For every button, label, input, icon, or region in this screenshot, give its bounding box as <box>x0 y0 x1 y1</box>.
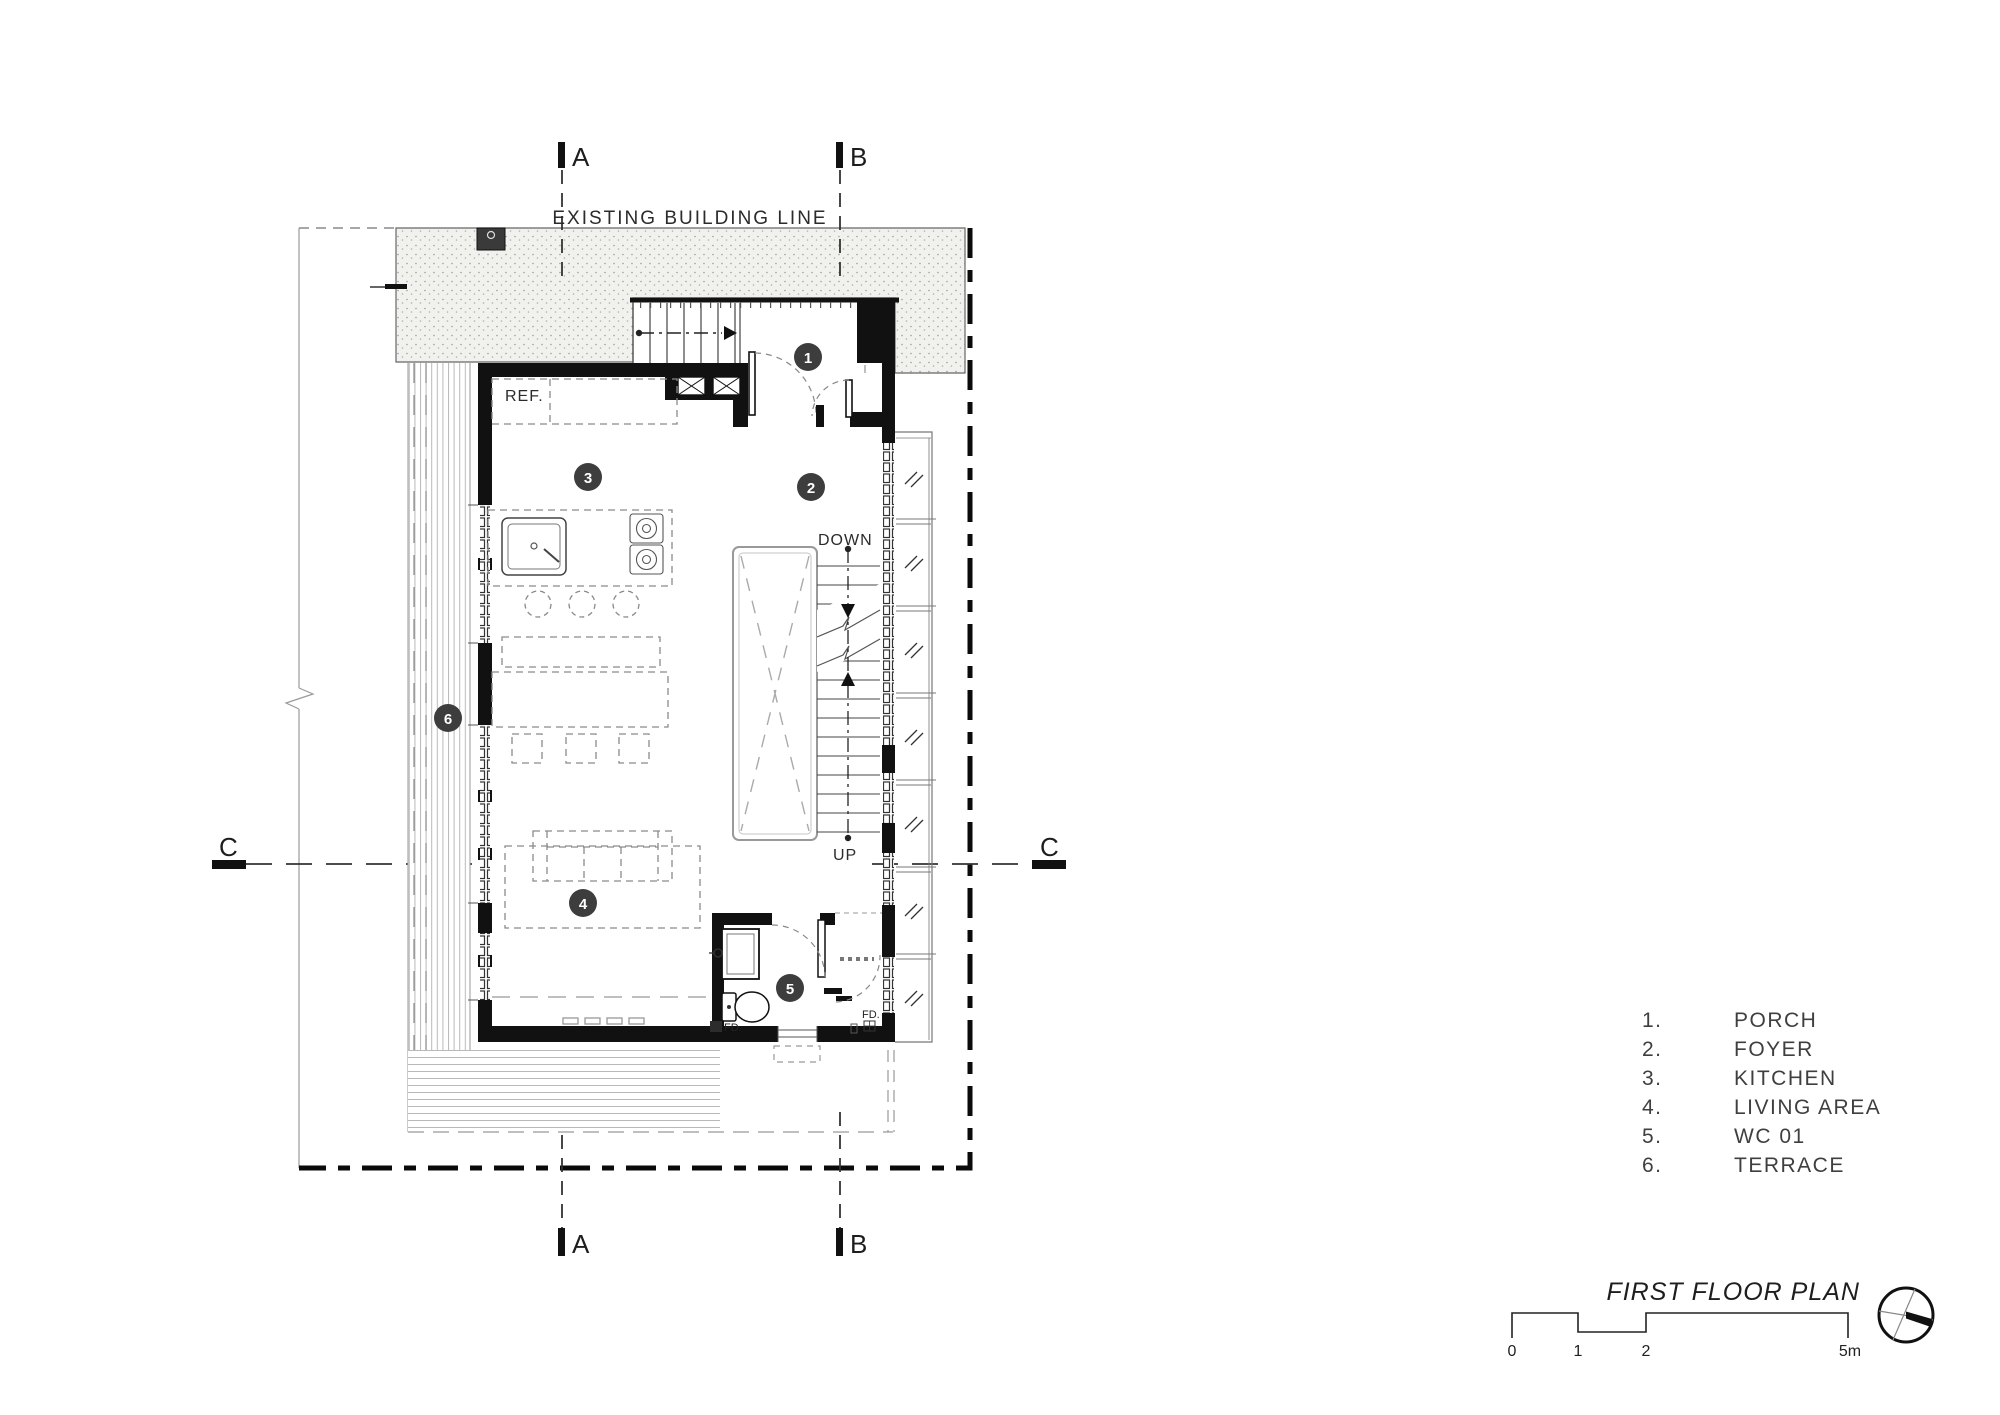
stair-guideline-dot-bottom <box>845 835 851 841</box>
scale-tick-5m: 5m <box>1839 1343 1861 1360</box>
svg-text:1: 1 <box>804 350 812 367</box>
window-right-1 <box>883 443 894 745</box>
legend-num: 3. <box>1642 1064 1734 1093</box>
wall-porch-corner <box>857 298 895 363</box>
entry-door-stop <box>816 405 824 427</box>
svg-text:6: 6 <box>444 711 452 728</box>
legend-label: TERRACE <box>1734 1151 1845 1180</box>
toilet-flush-icon <box>727 1005 731 1009</box>
house-walls <box>478 298 895 1042</box>
wall-left-seg2 <box>478 643 492 725</box>
overhang-right-dashed <box>888 1050 894 1132</box>
legend-num: 6. <box>1642 1151 1734 1180</box>
wc-01: FD. FD. <box>709 913 882 1034</box>
dining-bench-dashed <box>502 637 660 667</box>
wc-door-swing <box>772 925 825 977</box>
kitchen: REF. <box>488 379 677 617</box>
living-area <box>492 831 712 1024</box>
svg-text:4: 4 <box>579 896 588 913</box>
threshold-gap <box>778 1026 817 1042</box>
badge-foyer: 2 <box>797 473 825 501</box>
legend-num: 5. <box>1642 1122 1734 1151</box>
door-track-marks <box>563 1018 644 1024</box>
side-door-swing <box>836 955 880 1002</box>
rug-dashed <box>505 846 700 928</box>
bay-inner-line <box>896 438 931 1040</box>
sink-outer <box>502 518 566 575</box>
legend-label: WC 01 <box>1734 1122 1806 1151</box>
legend-label: KITCHEN <box>1734 1064 1837 1093</box>
floor-drain-label-right: FD. <box>862 1009 880 1021</box>
wc-wall-top <box>712 913 772 925</box>
svg-text:3: 3 <box>584 470 592 487</box>
svg-text:2: 2 <box>807 480 815 497</box>
hatch-edge-tick <box>385 284 407 289</box>
legend-num: 1. <box>1642 1006 1734 1035</box>
section-a-top-label: A <box>572 142 590 172</box>
legend-item-porch: 1. PORCH <box>1642 1006 1881 1035</box>
floor-plan-drawing: A B A B C C EXISTING BUILDING LINE <box>0 0 2000 1415</box>
sofa-cushions <box>547 831 658 881</box>
entry-stair-guideline-dot <box>636 330 642 336</box>
bay-outline <box>895 432 932 1042</box>
down-label: DOWN <box>818 532 873 549</box>
refrigerator-label: REF. <box>505 388 544 405</box>
badge-living-area: 4 <box>569 889 597 917</box>
wall-right-seg1 <box>882 745 895 773</box>
up-arrow-icon <box>841 672 855 686</box>
wall-bottom <box>478 1026 895 1042</box>
entry-stair-nosing-ticks <box>633 302 855 308</box>
dining-table-dashed <box>492 672 668 727</box>
vanity-outer <box>722 929 759 979</box>
window-right-2 <box>883 773 894 823</box>
section-b-bottom-label: B <box>850 1229 868 1259</box>
legend-label: PORCH <box>1734 1006 1817 1035</box>
dining <box>492 637 668 763</box>
section-a-bottom-label: A <box>572 1229 590 1259</box>
window-right-3 <box>883 853 894 905</box>
bay-panel-dividers <box>896 519 936 959</box>
badge-kitchen: 3 <box>574 463 602 491</box>
section-c-right-label: C <box>1040 832 1060 862</box>
section-c-left-bar <box>212 860 246 869</box>
wc-door-leaf <box>818 920 825 977</box>
window-left-3 <box>480 933 490 1000</box>
north-arrow-icon <box>1872 1280 1942 1355</box>
scale-bar: 0 1 2 5m <box>1498 1300 1878 1367</box>
existing-building-line-label: EXISTING BUILDING LINE <box>552 208 827 229</box>
legend-item-kitchen: 3. KITCHEN <box>1642 1064 1881 1093</box>
window-right-4 <box>883 957 894 1013</box>
floor-plan-sheet: A B A B C C EXISTING BUILDING LINE <box>0 0 2000 1415</box>
bottom-threshold <box>774 1026 820 1062</box>
exterior-step-dashed <box>774 1046 820 1062</box>
section-c-left-label: C <box>219 832 239 862</box>
up-label: UP <box>833 847 857 864</box>
legend-item-wc: 5. WC 01 <box>1642 1122 1881 1151</box>
legend-item-foyer: 2. FOYER <box>1642 1035 1881 1064</box>
section-a-bottom-bar <box>558 1228 565 1256</box>
wall-left-seg1 <box>478 363 492 505</box>
scale-tick-0: 0 <box>1508 1343 1517 1360</box>
wall-right-seg3 <box>882 905 895 957</box>
scale-tick-2: 2 <box>1642 1343 1651 1360</box>
stairwell: DOWN UP <box>733 532 880 864</box>
north-needle <box>1906 1312 1932 1328</box>
legend-item-living-area: 4. LIVING AREA <box>1642 1093 1881 1122</box>
legend-item-terrace: 6. TERRACE <box>1642 1151 1881 1180</box>
svg-text:5: 5 <box>786 981 794 998</box>
section-b-top-label: B <box>850 142 868 172</box>
legend-label: FOYER <box>1734 1035 1814 1064</box>
sofa-outline <box>533 831 672 881</box>
badge-wc: 5 <box>776 974 804 1002</box>
window-left-2 <box>480 725 490 903</box>
toilet-bowl <box>735 992 769 1022</box>
side-door-bar-1 <box>824 988 842 994</box>
room-legend: 1. PORCH 2. FOYER 3. KITCHEN 4. LIVING A… <box>1642 1006 1881 1180</box>
legend-num: 4. <box>1642 1093 1734 1122</box>
wall-right-upper <box>882 363 895 443</box>
boundary-left-break-symbol <box>286 688 313 709</box>
entry-door-right-leaf <box>846 380 852 417</box>
glass-marks <box>905 472 923 1006</box>
floor-drain-label-left: FD. <box>724 1022 742 1034</box>
island-stools <box>525 591 639 617</box>
side-door-bar-2 <box>836 996 852 1001</box>
terrace-left-boards <box>408 363 470 1132</box>
section-b-top-bar <box>836 142 843 168</box>
dining-chair-2 <box>566 734 596 763</box>
scale-bar-lines <box>1512 1313 1848 1338</box>
floor-drain-icon-left <box>710 1021 722 1032</box>
section-b-bottom-bar <box>836 1228 843 1256</box>
terrace-bottom-boards <box>408 1050 720 1132</box>
badge-terrace: 6 <box>434 704 462 732</box>
section-a-top-bar <box>558 142 565 168</box>
window-bay <box>895 432 936 1042</box>
legend-num: 2. <box>1642 1035 1734 1064</box>
entry-door-left-leaf <box>749 352 755 415</box>
scale-tick-1: 1 <box>1574 1343 1583 1360</box>
dining-chair-1 <box>512 734 542 763</box>
dining-chair-3 <box>619 734 649 763</box>
legend-label: LIVING AREA <box>1734 1093 1881 1122</box>
wall-right-seg2 <box>882 823 895 853</box>
cooktop <box>630 514 663 574</box>
badge-porch: 1 <box>794 343 822 371</box>
wall-left-seg3 <box>478 903 492 933</box>
